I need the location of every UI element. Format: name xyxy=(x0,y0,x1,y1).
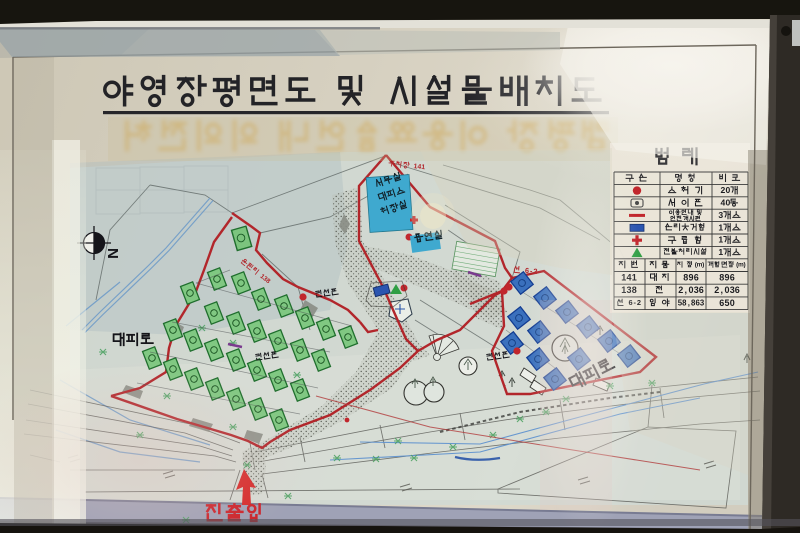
svg-text:,: , xyxy=(685,285,688,295)
svg-text:1: 1 xyxy=(718,235,723,245)
svg-text:): ) xyxy=(744,262,746,269)
svg-text:6: 6 xyxy=(699,285,704,295)
svg-text:0: 0 xyxy=(726,185,731,195)
svg-text:0: 0 xyxy=(730,298,735,308)
svg-text:,: , xyxy=(721,285,724,295)
svg-text:N: N xyxy=(104,248,121,259)
svg-text:2: 2 xyxy=(678,285,683,295)
svg-text:,: , xyxy=(688,298,690,307)
svg-text:): ) xyxy=(702,262,704,269)
svg-text:1: 1 xyxy=(718,222,723,232)
svg-text:6: 6 xyxy=(694,273,699,283)
svg-text:0: 0 xyxy=(726,198,731,208)
svg-text:6: 6 xyxy=(730,273,735,283)
svg-text:3: 3 xyxy=(700,298,705,307)
svg-text:1: 1 xyxy=(718,247,723,257)
svg-text:3: 3 xyxy=(718,210,723,220)
svg-text:6: 6 xyxy=(735,285,740,295)
svg-text:8: 8 xyxy=(682,298,687,307)
svg-text:2: 2 xyxy=(714,285,719,295)
